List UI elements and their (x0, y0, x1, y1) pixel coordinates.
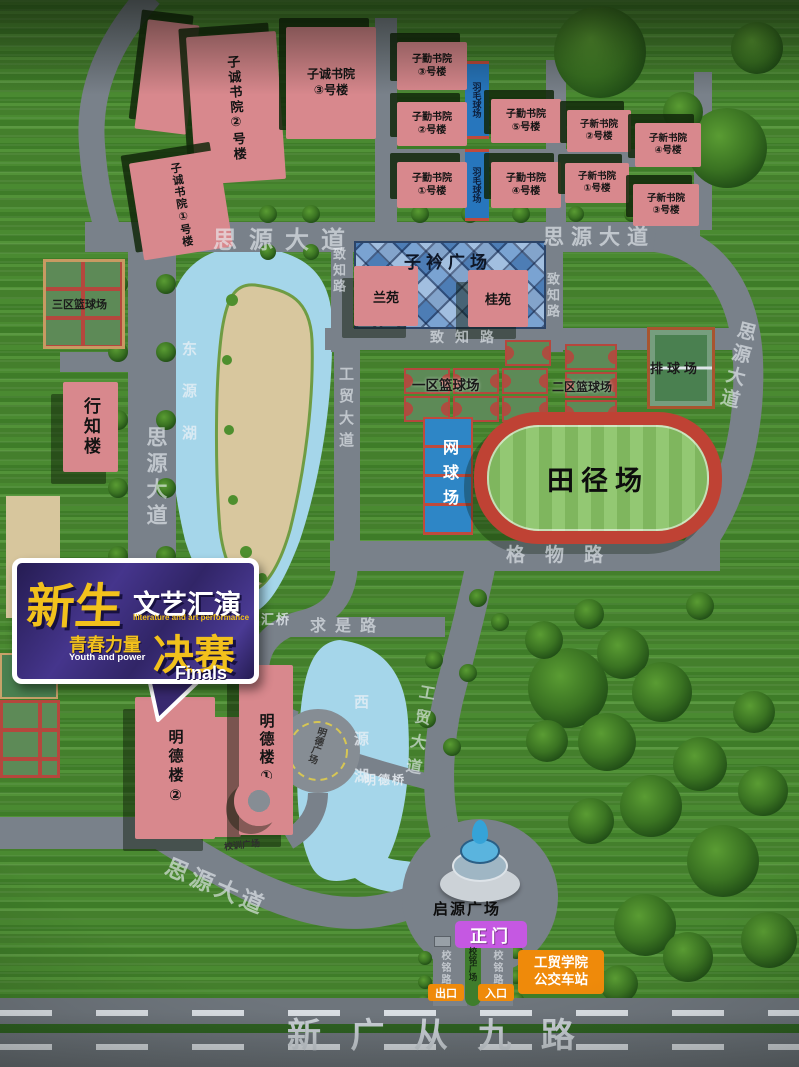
building-label-line1: 子勤书院 (412, 111, 452, 124)
building-label-line2: ④号楼 (506, 185, 546, 198)
building-zicheng-3: 子诚书院 ③号楼 (286, 27, 376, 139)
building-ziqin-3: 子勤书院③号楼 (397, 42, 467, 90)
building-label-line1: 子勤书院 (412, 53, 452, 66)
plaza-label-xiaoming: 校铭广场 (467, 947, 479, 981)
main-gate-label: 正门 (470, 922, 512, 947)
road-label-zhizhi-bottom: 致知路 (430, 327, 505, 347)
building-label-line1: 子新书院 (578, 171, 616, 183)
road-label-siyuan-left: 思源大道 (140, 426, 170, 530)
building-label-line2: ③号楼 (647, 205, 685, 217)
lake-label-xiyuan: 西源湖 (350, 694, 371, 805)
basketball-court (565, 344, 617, 370)
building-label-line2: ④号楼 (649, 145, 687, 157)
banner-title-main: 新生 (25, 567, 126, 637)
basketball-court (505, 340, 551, 366)
banner-slogan-en: Youth and power (69, 652, 145, 663)
entrance-badge: 入口 (478, 984, 514, 1001)
basketball-zone2-label: 二区篮球场 (552, 378, 612, 395)
main-gate-badge: 正门 (455, 921, 527, 948)
building-ziqin-5: 子勤书院⑤号楼 (491, 99, 561, 143)
building-label: 子诚书院①号楼 (166, 161, 195, 248)
building-label-line1: 子新书院 (647, 193, 685, 205)
building-mingde-wing (207, 717, 241, 837)
bus-station-line1: 工贸学院 (534, 955, 588, 972)
building-label-line2: ③号楼 (412, 66, 452, 79)
building-label-line1: 子新书院 (649, 133, 687, 145)
lake-label-dongyuan: 东源湖 (178, 341, 199, 467)
building-lanyuan: 兰苑 (354, 266, 418, 326)
road-label-zhizhi-left: 致知路 (329, 247, 348, 295)
building-label-line1: 子诚书院 (307, 67, 355, 83)
building-zixin-2: 子新书院②号楼 (567, 110, 631, 152)
tennis-courts: 网球场 (423, 417, 473, 535)
building-ziqin-4: 子勤书院④号楼 (491, 162, 561, 208)
fountain-spout (472, 820, 488, 844)
exit-badge: 出口 (428, 984, 464, 1001)
campus-map: 新 广 从 九 路 子衿广场 三区篮球场 一区篮球场 二区篮球场 排球场 网球场… (0, 0, 799, 1067)
building-mingde-annex-circle (234, 776, 284, 826)
building-zixin-4: 子新书院④号楼 (635, 123, 701, 167)
banner-stage-en: Finals (175, 663, 227, 684)
athletics-track: 田径场 (474, 412, 722, 544)
building-label: 子诚书院②号楼 (223, 54, 249, 162)
road-label-qiushi: 求是路 (310, 612, 385, 636)
building-label: 兰苑 (373, 287, 399, 306)
volleyball-label: 排球场 (650, 358, 701, 377)
badminton-label-2: 羽毛球场 (471, 167, 484, 203)
building-zixin-3: 子新书院③号楼 (633, 184, 699, 226)
road-label-xinguangcongjiu: 新 广 从 九 路 (287, 1008, 585, 1057)
building-ziqin-2: 子勤书院②号楼 (397, 102, 467, 146)
road-label-xiaoming-right: 校铭路 (489, 950, 504, 986)
entrance-label: 入口 (485, 985, 507, 1001)
road-label-gongmao-upper: 工贸大道 (335, 366, 356, 454)
building-label: 桂苑 (485, 289, 511, 308)
building-label-line2: ⑤号楼 (506, 121, 546, 134)
building-label-line2: ①号楼 (412, 185, 452, 198)
gate-sign-left (434, 936, 451, 947)
road-label-xiaoming-left: 校铭路 (437, 950, 452, 986)
event-banner: 新生 文艺汇演 lliterature and art performance … (12, 558, 272, 728)
road-label-gewu: 格物路 (506, 540, 623, 567)
badminton-court-1: 羽毛球场 (465, 61, 489, 139)
building-label: 明德楼② (165, 729, 186, 808)
building-label-line2: ③号楼 (307, 83, 355, 99)
building-label-line1: 子新书院 (580, 119, 618, 131)
bus-station-line2: 公交车站 (534, 972, 588, 989)
building-guiyuan: 桂苑 (468, 270, 528, 327)
building-label-line2: ①号楼 (578, 183, 616, 195)
zijin-plaza-label: 子衿广场 (404, 248, 492, 273)
building-ziqin-1: 子勤书院①号楼 (397, 162, 467, 208)
basketball-court (502, 368, 548, 394)
badminton-court-2: 羽毛球场 (465, 149, 489, 221)
building-label-line2: ②号楼 (412, 124, 452, 137)
road-label-siyuan-top-right: 思源大道 (543, 221, 655, 251)
building-label-line1: 子勤书院 (412, 172, 452, 185)
track-label: 田径场 (547, 459, 649, 498)
building-label-line1: 子勤书院 (506, 108, 546, 121)
track-infield: 田径场 (487, 425, 709, 531)
basketball-zone1-label: 一区篮球场 (412, 374, 480, 394)
building-label-line2: ②号楼 (580, 131, 618, 143)
plaza-label-qiyuan: 启源广场 (433, 898, 501, 919)
bus-station-badge: 工贸学院 公交车站 (518, 950, 604, 994)
road-label-zhizhi-right: 致知路 (543, 272, 562, 320)
tennis-label: 网球场 (436, 439, 460, 514)
building-zixin-1: 子新书院①号楼 (565, 163, 629, 203)
banner-bubble: 新生 文艺汇演 lliterature and art performance … (12, 558, 259, 684)
basketball-zone3-label: 三区篮球场 (52, 296, 107, 312)
badminton-label-1: 羽毛球场 (471, 82, 484, 118)
exit-label: 出口 (435, 985, 457, 1001)
building-xingzhi: 行知楼 (63, 382, 118, 472)
building-label-line1: 子勤书院 (506, 172, 546, 185)
building-label: 行知楼 (78, 397, 103, 457)
